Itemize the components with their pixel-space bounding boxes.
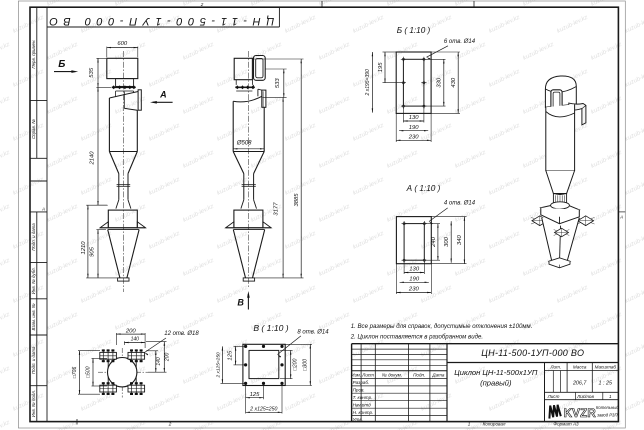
svg-text:1: 1 xyxy=(609,394,612,399)
svg-text:Ø508: Ø508 xyxy=(236,141,252,147)
svg-text:Циклон ЦН-11-500х1УП: Циклон ЦН-11-500х1УП xyxy=(454,368,538,377)
svg-text:130: 130 xyxy=(409,267,420,273)
svg-text:1 : 25: 1 : 25 xyxy=(599,380,613,386)
svg-text:Разраб.: Разраб. xyxy=(353,380,370,385)
svg-text:3177: 3177 xyxy=(274,202,280,216)
svg-text:□500: □500 xyxy=(85,366,91,378)
svg-text:Лист: Лист xyxy=(547,394,560,399)
svg-text:Инв. № дубл.: Инв. № дубл. xyxy=(31,267,36,294)
svg-text:230: 230 xyxy=(408,135,420,141)
svg-text:□706: □706 xyxy=(72,367,78,379)
svg-text:130: 130 xyxy=(409,115,420,121)
svg-text:240: 240 xyxy=(431,236,437,248)
svg-text:190: 190 xyxy=(409,125,420,131)
svg-text:Н. контр.: Н. контр. xyxy=(353,410,374,415)
svg-text:125: 125 xyxy=(250,392,261,398)
svg-text:А: А xyxy=(619,214,623,219)
svg-text:125: 125 xyxy=(227,350,233,361)
svg-text:206,7: 206,7 xyxy=(572,380,587,386)
svg-text:6 отв. Ø14: 6 отв. Ø14 xyxy=(444,39,476,45)
svg-text:Подп. и дата: Подп. и дата xyxy=(31,346,36,374)
svg-text:533: 533 xyxy=(275,78,281,89)
svg-text:Лист: Лист xyxy=(361,373,374,378)
svg-text:340: 340 xyxy=(457,235,463,246)
svg-text:А ( 1:10 ): А ( 1:10 ) xyxy=(406,184,441,193)
svg-text:(правый): (правый) xyxy=(480,378,512,387)
svg-text:□300: □300 xyxy=(302,359,308,371)
svg-text:№ докум.: № докум. xyxy=(382,373,402,378)
svg-text:2140: 2140 xyxy=(89,151,95,166)
svg-text:KVZR: KVZR xyxy=(564,407,597,420)
svg-text:200: 200 xyxy=(125,328,137,334)
svg-text:□200: □200 xyxy=(292,358,298,370)
svg-text:Подп. и дата: Подп. и дата xyxy=(31,223,36,251)
svg-text:ЦН-11-500-1УП-000 ВО: ЦН-11-500-1УП-000 ВО xyxy=(481,348,584,358)
svg-text:Утв.: Утв. xyxy=(353,417,363,422)
svg-text:В ( 1:10 ): В ( 1:10 ) xyxy=(253,323,288,333)
svg-text:12 отв. Ø18: 12 отв. Ø18 xyxy=(164,331,199,337)
svg-text:Подп.: Подп. xyxy=(413,373,425,378)
svg-text:2 х125=250: 2 х125=250 xyxy=(215,352,221,379)
svg-text:535: 535 xyxy=(89,67,95,78)
svg-text:А: А xyxy=(41,206,45,211)
svg-text:1. Все размеры для справок, д: 1. Все размеры для справок, допустимые о… xyxy=(351,323,533,330)
svg-text:140: 140 xyxy=(131,337,140,343)
svg-text:Листов: Листов xyxy=(576,394,594,399)
svg-text:200: 200 xyxy=(165,353,171,363)
svg-text:Котельный: Котельный xyxy=(596,405,619,410)
svg-text:Перв. примен.: Перв. примен. xyxy=(31,39,36,68)
svg-text:Масштаб: Масштаб xyxy=(595,364,617,369)
svg-text:1210: 1210 xyxy=(81,241,87,255)
svg-text:4 отв. Ø14: 4 отв. Ø14 xyxy=(444,201,476,207)
svg-text:190: 190 xyxy=(409,277,420,283)
svg-text:Дата: Дата xyxy=(431,373,445,378)
svg-text:430: 430 xyxy=(451,77,457,88)
svg-text:Б ( 1:10 ): Б ( 1:10 ) xyxy=(397,26,431,35)
svg-text:230: 230 xyxy=(408,287,420,293)
svg-text:Изм.: Изм. xyxy=(351,373,361,378)
svg-text:завод РЗП: завод РЗП xyxy=(596,413,618,418)
svg-text:195: 195 xyxy=(378,62,384,73)
svg-text:Взам. инв. №: Взам. инв. № xyxy=(31,303,36,330)
svg-text:2 х195=390: 2 х195=390 xyxy=(365,69,371,96)
svg-text:Нач.отд: Нач.отд xyxy=(353,402,372,407)
svg-text:3885: 3885 xyxy=(294,193,300,207)
svg-text:300: 300 xyxy=(444,236,450,247)
svg-text:905: 905 xyxy=(89,246,95,257)
svg-text:А: А xyxy=(159,89,167,99)
svg-text:Формат А3: Формат А3 xyxy=(553,422,579,427)
svg-text:ЦН-11-500-1УП-000 ВО: ЦН-11-500-1УП-000 ВО xyxy=(44,15,275,27)
svg-text:Масса: Масса xyxy=(573,364,587,369)
svg-text:2: 2 xyxy=(200,2,204,7)
svg-text:Пров.: Пров. xyxy=(353,388,365,393)
svg-text:600: 600 xyxy=(117,41,128,47)
svg-text:2: 2 xyxy=(168,422,172,427)
svg-text:2. Циклон поставляется в разо: 2. Циклон поставляется в разобранном вид… xyxy=(350,334,483,341)
svg-text:Лит.: Лит. xyxy=(549,364,561,369)
svg-text:1: 1 xyxy=(468,422,471,427)
svg-text:8 отв. Ø14: 8 отв. Ø14 xyxy=(297,330,329,336)
svg-text:Т. контр.: Т. контр. xyxy=(353,395,373,400)
svg-text:Справ. №: Справ. № xyxy=(31,119,36,139)
svg-text:140: 140 xyxy=(156,357,162,366)
svg-text:330: 330 xyxy=(437,77,443,88)
svg-text:2 х125=250: 2 х125=250 xyxy=(249,406,277,412)
svg-text:Инв. № подл.: Инв. № подл. xyxy=(31,390,36,417)
svg-text:Копировал: Копировал xyxy=(483,422,506,427)
svg-text:Б: Б xyxy=(58,59,65,70)
svg-text:В: В xyxy=(237,298,244,308)
